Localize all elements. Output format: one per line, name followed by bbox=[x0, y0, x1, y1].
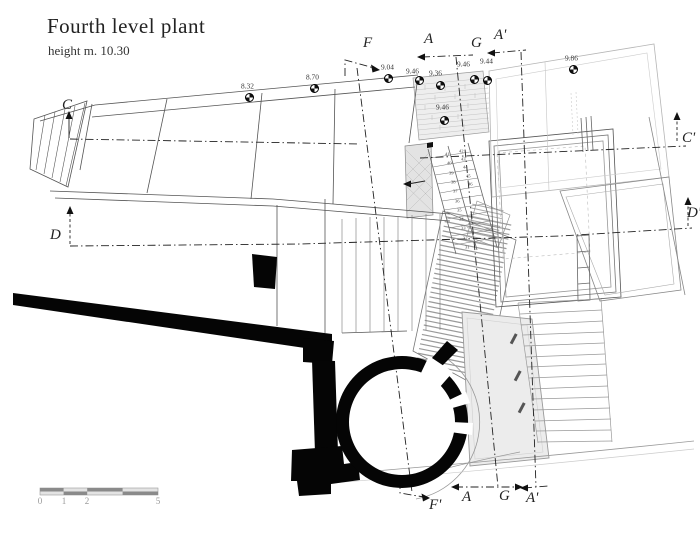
tower-poche bbox=[13, 254, 468, 496]
arrow-line-a-top bbox=[422, 55, 473, 57]
section-line-f bbox=[357, 68, 412, 492]
wall-stub-poche bbox=[252, 254, 277, 289]
floor-plan-sheet: Fourth level plant height m. 10.30 FAGA'… bbox=[0, 0, 700, 537]
section-arrowheads bbox=[66, 50, 692, 502]
long-wall-poche bbox=[13, 293, 332, 352]
pier-shaft-poche bbox=[312, 360, 338, 453]
landing-door-mark bbox=[427, 142, 433, 148]
section-line-c-right bbox=[420, 146, 686, 158]
building-outlines bbox=[30, 44, 694, 499]
section-line-d bbox=[70, 228, 692, 246]
plan-drawing bbox=[0, 0, 700, 537]
section-line-c-left bbox=[70, 139, 360, 144]
pier-top-poche bbox=[303, 338, 334, 364]
arrow-line-f-top bbox=[345, 60, 374, 76]
scale-bar bbox=[40, 488, 158, 495]
